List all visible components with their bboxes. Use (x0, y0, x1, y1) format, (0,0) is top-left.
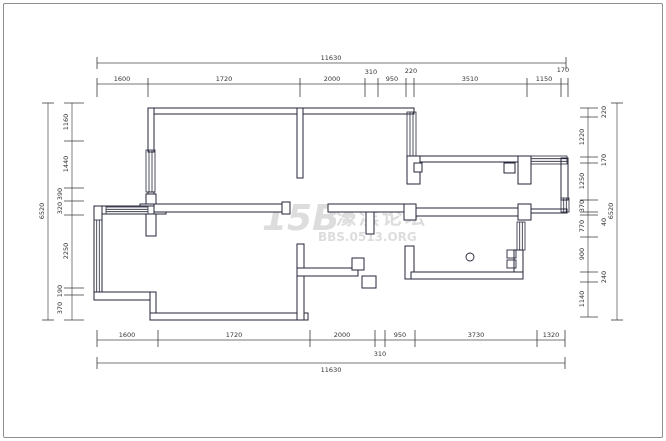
dim-top-inner: 1600 1720 2000 310 950 220 3510 1150 170 (97, 66, 569, 97)
dim-label: 2000 (334, 331, 351, 339)
dim-label: 190 (56, 285, 64, 297)
dim-label: 320 (56, 202, 64, 214)
wall-bedroom-divider (297, 108, 303, 178)
wall-bath-bottom (411, 272, 523, 279)
door-jamb (414, 163, 422, 172)
wall-bottom-main (150, 313, 308, 320)
column-cross-vertical (146, 194, 156, 236)
wall-central-left (154, 204, 284, 212)
dim-label: 770 (578, 220, 586, 232)
dim-label: 1140 (578, 291, 586, 308)
dim-bottom-inner: 1600 1720 2000 310 950 3730 1320 (97, 330, 565, 358)
dim-label: 2000 (324, 75, 341, 83)
dim-right-inner: 220 1220 170 1250 370 40 770 900 240 114… (578, 106, 608, 317)
dim-label: 11630 (321, 54, 342, 62)
dim-label: 1320 (543, 331, 560, 339)
wall-step-piece (362, 276, 376, 288)
dim-label: 170 (557, 66, 569, 74)
dim-label: 1150 (536, 75, 553, 83)
column-hall-right (518, 156, 531, 184)
door-jamb (352, 258, 364, 270)
door-jamb (504, 163, 515, 173)
wall-central-right (328, 204, 414, 212)
window-bath-right (517, 222, 525, 250)
dim-label: 390 (56, 188, 64, 200)
dim-label: 6520 (607, 203, 615, 220)
dim-bottom-outer: 11630 (97, 357, 565, 374)
dim-label: 310 (374, 350, 386, 358)
wall-living-bottom-left (94, 292, 156, 300)
dim-label: 1600 (119, 331, 136, 339)
window-upper-left (146, 150, 155, 192)
wall-hall-top (409, 156, 531, 162)
dim-label: 3730 (468, 331, 485, 339)
dim-label: 950 (386, 75, 398, 83)
dim-label: 370 (56, 302, 64, 314)
dim-label: 1600 (114, 75, 131, 83)
dim-label: 1160 (62, 114, 70, 131)
dim-label: 1220 (578, 129, 586, 146)
wall-upper-left (148, 108, 154, 152)
wall-hall-lower (297, 268, 358, 276)
floorplan-canvas: 11630 1600 1720 2000 310 950 220 3510 11… (0, 0, 666, 441)
dim-left-inner: 1160 1440 390 320 2250 190 370 (56, 103, 84, 320)
dim-label: 370 (578, 200, 586, 212)
column-mid-right (518, 204, 531, 220)
dim-top-outer: 11630 (97, 54, 566, 69)
dim-label: 2250 (62, 243, 70, 260)
column-mid-left (404, 204, 416, 220)
wall-top (148, 108, 414, 114)
dim-label: 310 (365, 68, 377, 76)
dim-label: 1720 (216, 75, 233, 83)
door-jamb (282, 202, 290, 214)
fixtures (466, 250, 516, 268)
floor-drain-symbol (466, 253, 474, 261)
dim-label: 220 (600, 106, 608, 118)
wall-short-vertical (366, 212, 374, 234)
dim-label: 3510 (462, 75, 479, 83)
wall-living-right (297, 244, 304, 320)
dim-label: 1720 (226, 331, 243, 339)
dim-right-outer: 6520 (607, 103, 623, 320)
dim-label: 6520 (38, 203, 46, 220)
wall-mid-right (407, 208, 528, 216)
window-top-middle (407, 112, 416, 156)
dim-left-outer: 6520 (38, 103, 54, 320)
dim-label: 170 (600, 154, 608, 166)
dim-label: 1440 (62, 156, 70, 173)
dim-label: 900 (578, 248, 586, 260)
dim-label: 240 (600, 271, 608, 283)
dim-label: 1250 (578, 173, 586, 190)
dim-label: 950 (394, 331, 406, 339)
dim-label: 220 (405, 67, 417, 75)
dim-label: 11630 (321, 366, 342, 374)
